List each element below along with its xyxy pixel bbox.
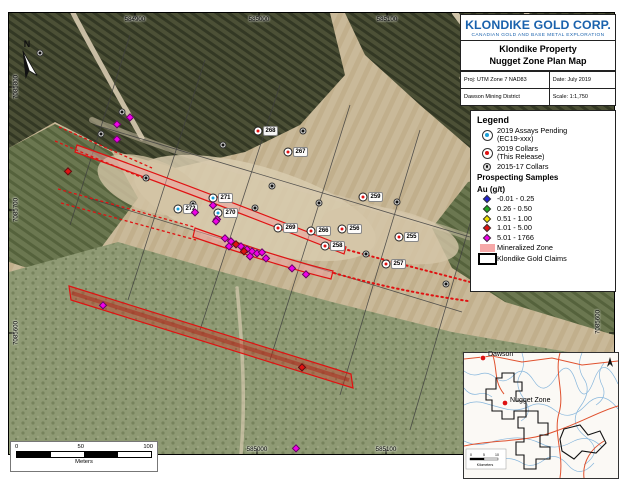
legend: Legend 2019 Assays Pending(EC19-xxx) 201… <box>470 110 616 292</box>
inset-scale-bar: 0 5 10 Kilometers <box>466 449 506 469</box>
company-name: KLONDIKE GOLD CORP. <box>462 18 614 32</box>
scale-tick: 0 <box>15 444 18 450</box>
svg-text:10: 10 <box>495 453 499 457</box>
inset-label-dawson: Dawson <box>488 351 513 358</box>
svg-text:0: 0 <box>470 453 472 457</box>
legend-title: Legend <box>477 115 609 125</box>
north-arrow-label: N <box>24 39 31 49</box>
diamond-blue-icon <box>483 195 491 203</box>
legend-item-2019-collars: 2019 Collars(This Release) <box>477 145 609 161</box>
collar-2019-icon <box>482 148 493 159</box>
legend-class-5: 5.01 - 1766 <box>477 234 609 242</box>
location-inset-map: 0 5 10 Kilometers <box>463 352 619 479</box>
scale-tick: 50 <box>78 444 84 450</box>
map-title: Klondike Property Nugget Zone Plan Map <box>461 41 615 71</box>
diamond-green-icon <box>483 205 491 213</box>
dawson-dot <box>480 355 485 360</box>
zone-swatch-icon <box>480 244 495 252</box>
claims-swatch-icon <box>478 253 497 265</box>
nugget-zone-dot <box>502 400 507 405</box>
pending-collar-icon <box>482 130 493 141</box>
scale-bar-ticks: 0 50 100 <box>11 442 157 451</box>
scale-bar-units: Meters <box>11 459 157 465</box>
legend-item-old-collars: 2015-17 Collars <box>477 163 609 171</box>
legend-claims: Klondike Gold Claims <box>477 253 609 265</box>
svg-text:Kilometers: Kilometers <box>477 463 494 467</box>
samples-heading: Prospecting Samples <box>477 173 609 182</box>
scale-bar-graphic <box>16 451 152 458</box>
legend-class-2: 0.26 - 0.50 <box>477 205 609 213</box>
diamond-red-icon <box>483 224 491 232</box>
date-label: Date: July 2019 <box>549 71 615 88</box>
title-block: KLONDIKE GOLD CORP. CANADIAN GOLD AND BA… <box>460 14 616 106</box>
svg-text:5: 5 <box>483 453 485 457</box>
au-heading: Au (g/t) <box>477 185 609 194</box>
diamond-yellow-icon <box>483 215 491 223</box>
scale-tick: 100 <box>143 444 153 450</box>
scale-bar: 0 50 100 Meters <box>10 441 158 472</box>
legend-mineralized-zone: Mineralized Zone <box>477 244 609 252</box>
inset-label-nugget-zone: Nugget Zone <box>510 397 550 404</box>
property-name: Klondike Property <box>461 44 615 56</box>
projection-label: Proj: UTM Zone 7 NAD83 <box>461 71 549 88</box>
diamond-magenta-icon <box>483 234 491 242</box>
legend-class-1: -0.01 - 0.25 <box>477 195 609 203</box>
scale-label: Scale: 1:1,750 <box>549 88 615 105</box>
company-logo: KLONDIKE GOLD CORP. CANADIAN GOLD AND BA… <box>461 15 615 41</box>
inset-graphic: 0 5 10 Kilometers <box>464 353 618 478</box>
legend-item-assays-pending: 2019 Assays Pending(EC19-xxx) <box>477 127 609 143</box>
map-metadata: Proj: UTM Zone 7 NAD83 Date: July 2019 D… <box>461 71 615 105</box>
collar-2015-17-icon <box>483 163 491 171</box>
map-document: N 26826725926926625625825525727227127058… <box>0 0 624 482</box>
district-label: Dawson Mining District <box>461 88 549 105</box>
legend-class-4: 1.01 - 5.00 <box>477 224 609 232</box>
legend-class-3: 0.51 - 1.00 <box>477 215 609 223</box>
company-tagline: CANADIAN GOLD AND BASE METAL EXPLORATION <box>462 33 614 38</box>
map-name: Nugget Zone Plan Map <box>461 56 615 68</box>
